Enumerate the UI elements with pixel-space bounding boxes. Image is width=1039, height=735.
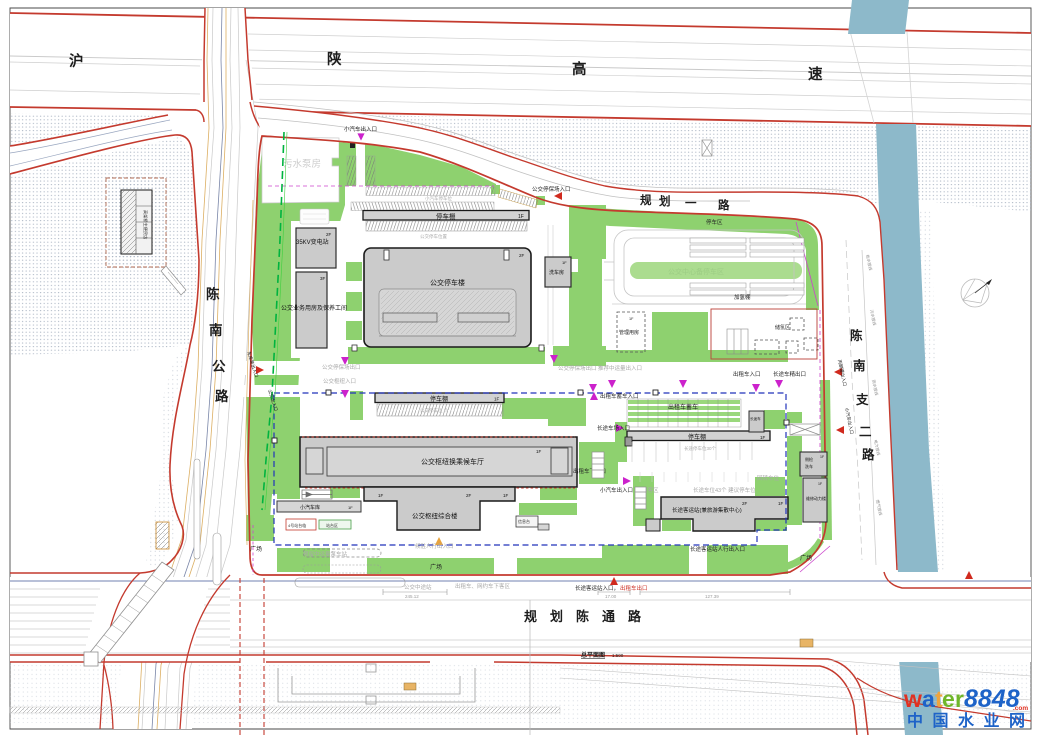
svg-text:南: 南	[853, 358, 866, 373]
svg-text:2F: 2F	[326, 232, 332, 237]
svg-text:小汽车出入口: 小汽车出入口	[344, 125, 377, 133]
svg-text:.com: .com	[1013, 705, 1028, 712]
svg-text:1F: 1F	[760, 435, 766, 440]
svg-text:公: 公	[212, 359, 226, 374]
svg-text:陈: 陈	[576, 609, 589, 624]
svg-text:1F: 1F	[503, 493, 509, 498]
svg-text:广场: 广场	[800, 554, 812, 562]
svg-text:小汽车停车位: 小汽车停车位	[425, 195, 452, 202]
svg-text:回转车位: 回转车位	[757, 474, 780, 482]
svg-text:127.39: 127.39	[705, 594, 719, 599]
svg-text:广场: 广场	[430, 563, 442, 571]
svg-text:公交停保场出口: 公交停保场出口	[322, 363, 361, 371]
svg-text:长途停车位30个: 长途停车位30个	[684, 445, 717, 452]
svg-text:1F: 1F	[818, 482, 822, 486]
svg-text:停车区: 停车区	[706, 218, 723, 226]
svg-text:维修动力楼: 维修动力楼	[806, 495, 826, 501]
svg-text:35KV变电站: 35KV变电站	[296, 238, 329, 246]
svg-text:长途客运站入口，: 长途客运站入口，	[575, 584, 619, 592]
svg-text:二: 二	[859, 425, 872, 439]
svg-text:加氢棚: 加氢棚	[734, 293, 751, 301]
svg-text:公交枢纽入口: 公交枢纽入口	[323, 377, 356, 385]
svg-text:路: 路	[215, 388, 229, 404]
svg-text:e: e	[942, 686, 955, 712]
svg-text:路: 路	[862, 447, 875, 462]
svg-text:沪: 沪	[69, 52, 84, 70]
svg-text:高架桥主便民店: 高架桥主便民店	[142, 210, 149, 239]
svg-text:陕: 陕	[327, 50, 342, 68]
svg-text:路: 路	[628, 609, 642, 624]
svg-text:17.00: 17.00	[605, 594, 617, 599]
svg-text:支: 支	[855, 392, 869, 407]
svg-text:长途车: 长途车	[750, 416, 761, 421]
svg-text:规: 规	[640, 193, 652, 207]
svg-text:出租车、网约车下客区: 出租车、网约车下客区	[455, 582, 511, 590]
svg-text:污水泵房: 污水泵房	[283, 158, 321, 170]
svg-text:中国水业网: 中国水业网	[907, 711, 1035, 730]
svg-text:1F: 1F	[820, 455, 824, 459]
svg-text:停车棚: 停车棚	[430, 395, 448, 403]
svg-text:w: w	[903, 686, 922, 712]
svg-text:1F: 1F	[518, 214, 524, 220]
svg-text:通: 通	[602, 609, 615, 624]
svg-text:2F: 2F	[519, 253, 525, 258]
svg-text:陈: 陈	[206, 286, 220, 302]
svg-text:速: 速	[808, 65, 823, 83]
svg-text:3F: 3F	[320, 276, 326, 281]
svg-text:公交枢纽换乘候车厅: 公交枢纽换乘候车厅	[421, 457, 484, 466]
svg-text:8848: 8848	[964, 685, 1020, 713]
svg-text:长途车位43个 建议停车位: 长途车位43个 建议停车位	[693, 486, 756, 494]
svg-text:1F: 1F	[378, 493, 384, 498]
svg-text:a: a	[922, 686, 935, 712]
svg-text:出租车出口: 出租车出口	[620, 584, 648, 592]
svg-text:高: 高	[572, 60, 587, 78]
svg-text:洗车房: 洗车房	[549, 269, 564, 276]
svg-text:4号站台临: 4号站台临	[288, 522, 306, 528]
svg-text:公交停车位置: 公交停车位置	[420, 233, 447, 240]
svg-text:1F: 1F	[348, 505, 353, 510]
svg-text:预留中运量泵车站: 预留中运量泵车站	[303, 550, 348, 558]
svg-text:出租车蓄车: 出租车蓄车	[668, 403, 698, 411]
svg-text:广场: 广场	[250, 545, 262, 553]
svg-text:1F: 1F	[629, 317, 634, 321]
svg-text:出租车蓄车入口: 出租车蓄车入口	[600, 392, 639, 400]
svg-text:2F: 2F	[742, 501, 748, 506]
svg-text:2F: 2F	[466, 493, 472, 498]
svg-text:1:500: 1:500	[612, 653, 624, 658]
svg-text:小汽车库: 小汽车库	[300, 504, 320, 511]
svg-text:一: 一	[685, 198, 697, 210]
svg-text:管理用房: 管理用房	[619, 329, 639, 336]
svg-text:总平面图: 总平面图	[581, 651, 605, 659]
svg-text:245.12: 245.12	[405, 594, 419, 599]
svg-text:长途车场入口: 长途车场入口	[597, 424, 630, 432]
svg-text:规: 规	[524, 609, 537, 624]
svg-text:长途车精出口: 长途车精出口	[773, 370, 806, 378]
svg-text:公交枢纽综合楼: 公交枢纽综合楼	[412, 511, 458, 520]
svg-text:站台区: 站台区	[326, 522, 338, 528]
svg-text:洗车: 洗车	[805, 463, 813, 469]
svg-text:1F: 1F	[494, 397, 500, 402]
svg-text:1F: 1F	[536, 449, 542, 454]
svg-text:划: 划	[550, 609, 563, 624]
svg-text:出租车入口: 出租车入口	[733, 370, 761, 378]
svg-text:小汽车出入口: 小汽车出入口	[600, 486, 633, 494]
svg-text:公交停车楼: 公交停车楼	[430, 278, 465, 287]
svg-text:划: 划	[659, 194, 671, 208]
svg-text:公交停保场出口 推荐中运量出入口: 公交停保场出口 推荐中运量出入口	[558, 364, 642, 372]
svg-text:停车棚: 停车棚	[436, 212, 456, 221]
svg-text:公交业务用房及保养工间: 公交业务用房及保养工间	[281, 304, 347, 312]
svg-text:储氢区: 储氢区	[775, 324, 790, 331]
svg-text:长途客运站(兼旅游集散中心): 长途客运站(兼旅游集散中心)	[672, 506, 742, 514]
svg-text:r: r	[955, 686, 964, 712]
svg-text:停车棚: 停车棚	[688, 433, 706, 441]
svg-text:1F: 1F	[778, 501, 784, 506]
svg-text:南: 南	[209, 322, 223, 338]
svg-text:公交中心备停车区: 公交中心备停车区	[668, 267, 724, 276]
svg-text:侧检: 侧检	[805, 456, 813, 462]
svg-text:陈: 陈	[850, 328, 863, 343]
svg-text:候驻人行出入口: 候驻人行出入口	[415, 542, 454, 550]
svg-text:公交中途站: 公交中途站	[404, 583, 432, 591]
svg-text:长途客运站人行出入口: 长途客运站人行出入口	[690, 545, 745, 553]
svg-text:公交停保场入口: 公交停保场入口	[532, 185, 571, 193]
svg-text:信息台: 信息台	[518, 518, 530, 524]
svg-text:公交停车位 个: 公交停车位 个	[420, 407, 449, 414]
svg-text:路: 路	[718, 198, 730, 212]
svg-text:1F: 1F	[562, 260, 567, 265]
